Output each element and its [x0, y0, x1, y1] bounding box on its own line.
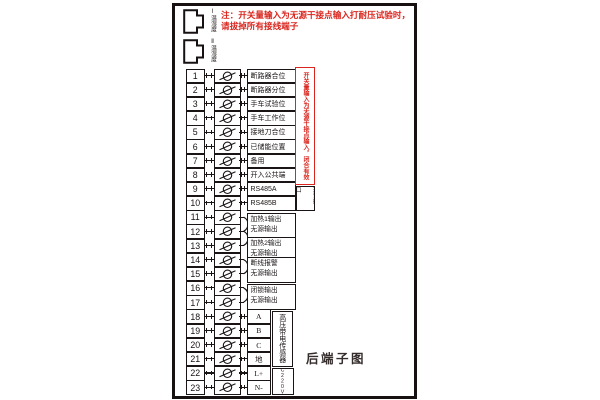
rj45-connector-icon	[183, 9, 209, 34]
screw-terminal-icon	[215, 140, 240, 153]
wire-tick	[211, 328, 212, 333]
terminal-label: L+	[247, 366, 271, 381]
screw-terminal-cell	[214, 154, 241, 169]
wire-tick	[206, 257, 207, 262]
screw-terminal-icon	[215, 381, 240, 394]
screw-terminal-icon	[215, 339, 240, 352]
screw-terminal-icon	[215, 367, 240, 380]
wire-tick	[206, 229, 207, 234]
screw-terminal-cell	[214, 69, 241, 84]
wire-tick	[206, 87, 207, 92]
wire-tick	[211, 385, 212, 390]
wire-tick	[206, 243, 207, 248]
wire-tick	[206, 357, 207, 362]
screw-terminal-icon	[215, 112, 240, 125]
terminal-number-cell: 23	[186, 380, 205, 395]
wire-tick	[206, 201, 207, 206]
output-group-line2: 无源输出	[251, 225, 296, 235]
screw-terminal-icon	[215, 325, 240, 338]
wire-tick	[244, 357, 245, 362]
wire-tick	[241, 116, 242, 121]
wire-tick	[206, 328, 207, 333]
wire-tick	[241, 342, 242, 347]
terminal-number-cell: 15	[186, 267, 205, 282]
screw-terminal-icon	[215, 353, 240, 366]
screw-terminal-cell	[214, 338, 241, 353]
wire-tick	[241, 87, 242, 92]
wire-tick	[206, 314, 207, 319]
wire-tick	[241, 172, 242, 177]
output-group-box: 闭锁输出无源输出	[247, 284, 296, 310]
wire-tick	[211, 300, 212, 305]
wire-tick	[206, 371, 207, 376]
terminal-number-cell: 10	[186, 196, 205, 211]
screw-terminal-cell	[214, 239, 241, 254]
sensor-jack-2-label: Ⅱ温湿度	[208, 39, 218, 67]
screw-terminal-icon	[215, 211, 240, 224]
wire-tick	[211, 357, 212, 362]
output-group-box: 加热1输出无源输出	[247, 213, 296, 239]
screw-terminal-cell	[214, 352, 241, 367]
wire-tick	[211, 243, 212, 248]
screw-terminal-icon	[215, 183, 240, 196]
screw-terminal-cell	[214, 281, 241, 296]
screw-terminal-icon	[215, 282, 240, 295]
wire-tick	[211, 257, 212, 262]
terminal-number-cell: 12	[186, 224, 205, 239]
screw-terminal-cell	[214, 196, 241, 211]
screw-terminal-icon	[215, 310, 240, 323]
wire-tick	[241, 328, 242, 333]
wire-tick	[211, 201, 212, 206]
wire-tick	[211, 101, 212, 106]
screw-terminal-icon	[215, 84, 240, 97]
wire-tick	[206, 73, 207, 78]
wire-tick	[244, 144, 245, 149]
screw-terminal-cell	[214, 309, 241, 324]
output-group-line2: 无源输出	[251, 269, 296, 279]
screw-terminal-cell	[214, 111, 241, 126]
wire-tick	[241, 201, 242, 206]
wire-tick	[211, 73, 212, 78]
terminal-number-cell: 1	[186, 69, 205, 84]
wire-tick	[241, 101, 242, 106]
rear-terminal-diagram-page: Ⅰ温湿度 Ⅱ温湿度 注：开关量输入为无源干接点输入打耐压试验时， 请拔掉所有接线…	[0, 0, 600, 400]
sensor-jack-1-label: Ⅰ温湿度	[208, 9, 218, 37]
wire-tick	[241, 371, 242, 376]
device-power-label: AC220V 装置电源	[272, 368, 294, 395]
comm-port-label: 通讯接口	[296, 186, 316, 211]
wire-tick	[241, 130, 242, 135]
terminal-number-cell: 13	[186, 239, 205, 254]
wire-tick	[206, 300, 207, 305]
wire-tick	[244, 186, 245, 191]
wire-tick	[206, 116, 207, 121]
terminal-number-cell: 9	[186, 182, 205, 197]
terminal-number-cell: 21	[186, 352, 205, 367]
output-group-line2: 无源输出	[251, 296, 296, 306]
screw-terminal-cell	[214, 267, 241, 282]
wire-tick	[211, 215, 212, 220]
warning-note-line2: 请拔掉所有接线端子	[221, 21, 413, 32]
wire-tick	[211, 116, 212, 121]
terminal-number-cell: 19	[186, 324, 205, 339]
warning-note: 注：开关量输入为无源干接点输入打耐压试验时， 请拔掉所有接线端子	[221, 10, 413, 33]
wire-tick	[241, 144, 242, 149]
wire-tick	[244, 385, 245, 390]
wire-tick	[244, 116, 245, 121]
output-group-line1: 加热1输出	[251, 215, 296, 225]
wire-tick	[211, 342, 212, 347]
terminal-number-cell: 5	[186, 125, 205, 140]
terminal-number-cell: 7	[186, 154, 205, 169]
terminal-label: 已储能位置	[247, 139, 296, 154]
wire-tick	[211, 229, 212, 234]
terminal-number-cell: 17	[186, 295, 205, 310]
terminal-label: 备用	[247, 154, 296, 169]
terminal-label: 接地刀合位	[247, 125, 296, 140]
wire-tick	[241, 314, 242, 319]
terminal-label: C	[247, 338, 271, 353]
wire-tick	[211, 158, 212, 163]
screw-terminal-icon	[215, 225, 240, 238]
diagram-caption: 后端子图	[306, 348, 366, 367]
screw-terminal-icon	[215, 98, 240, 111]
screw-terminal-cell	[214, 295, 241, 310]
screw-terminal-icon	[215, 155, 240, 168]
wire-tick	[244, 342, 245, 347]
warning-note-line1: 注：开关量输入为无源干接点输入打耐压试验时，	[221, 10, 413, 21]
wire-tick	[241, 186, 242, 191]
wire-tick	[244, 328, 245, 333]
screw-terminal-icon	[215, 197, 240, 210]
wire-tick	[241, 158, 242, 163]
terminal-label: N-	[247, 380, 271, 395]
output-group-box: 断线报警无源输出	[247, 257, 296, 283]
terminal-label: 断路器分位	[247, 83, 296, 98]
wire-tick	[244, 158, 245, 163]
screw-terminal-cell	[214, 83, 241, 98]
terminal-number-cell: 3	[186, 97, 205, 112]
terminal-number-cell: 16	[186, 281, 205, 296]
screw-terminal-cell	[214, 380, 241, 395]
wire-tick	[211, 371, 212, 376]
wire-tick	[211, 144, 212, 149]
wire-tick	[206, 101, 207, 106]
wire-tick	[241, 357, 242, 362]
sensor-jack-2	[183, 39, 209, 64]
wire-tick	[211, 286, 212, 291]
wire-tick	[211, 172, 212, 177]
terminal-number-cell: 2	[186, 83, 205, 98]
terminal-number-cell: 14	[186, 253, 205, 268]
wire-tick	[244, 101, 245, 106]
terminal-number-cell: 20	[186, 338, 205, 353]
wire-tick	[206, 158, 207, 163]
wire-tick	[211, 271, 212, 276]
output-group-line1: 加热2输出	[251, 239, 296, 249]
terminal-label: A	[247, 309, 271, 324]
screw-terminal-icon	[215, 169, 240, 182]
sensor-jack-1	[183, 9, 209, 34]
wire-tick	[244, 87, 245, 92]
wire-tick	[206, 186, 207, 191]
screw-terminal-icon	[215, 268, 240, 281]
screw-terminal-cell	[214, 97, 241, 112]
output-group-line1: 断线报警	[251, 259, 296, 269]
terminal-number-cell: 18	[186, 309, 205, 324]
screw-terminal-cell	[214, 210, 241, 225]
wire-tick	[206, 130, 207, 135]
terminal-label: RS485A	[247, 182, 296, 197]
rj45-connector-icon	[183, 39, 209, 64]
screw-terminal-cell	[214, 253, 241, 268]
screw-terminal-icon	[215, 126, 240, 139]
wire-tick	[206, 215, 207, 220]
terminal-number-cell: 4	[186, 111, 205, 126]
output-group-line1: 闭锁输出	[251, 286, 296, 296]
wire-tick	[244, 172, 245, 177]
screw-terminal-cell	[214, 324, 241, 339]
screw-terminal-icon	[215, 70, 240, 83]
wire-tick	[244, 314, 245, 319]
screw-terminal-cell	[214, 224, 241, 239]
wire-tick	[206, 271, 207, 276]
terminal-label: 断路器合位	[247, 69, 296, 84]
screw-terminal-icon	[215, 296, 240, 309]
wire-tick	[206, 385, 207, 390]
wire-tick	[206, 286, 207, 291]
terminal-label: 开入公共端	[247, 168, 296, 183]
screw-terminal-cell	[214, 139, 241, 154]
wire-tick	[206, 144, 207, 149]
screw-terminal-cell	[214, 125, 241, 140]
wire-tick	[211, 186, 212, 191]
switch-input-note-box: 开关量输入为无源干接点输入，闭合有效	[295, 67, 315, 185]
terminal-label: B	[247, 324, 271, 339]
wire-tick	[244, 371, 245, 376]
wire-tick	[244, 73, 245, 78]
wire-tick	[241, 385, 242, 390]
wire-tick	[244, 130, 245, 135]
wire-tick	[211, 87, 212, 92]
terminal-number-cell: 8	[186, 168, 205, 183]
wire-tick	[211, 314, 212, 319]
wire-tick	[211, 130, 212, 135]
screw-terminal-cell	[214, 366, 241, 381]
hv-sensor-label: 高压带电传感器	[272, 311, 294, 367]
terminal-number-cell: 6	[186, 139, 205, 154]
terminal-label: 手车试验位	[247, 97, 296, 112]
terminal-label: RS485B	[247, 196, 296, 211]
screw-terminal-icon	[215, 254, 240, 267]
power-rating-text: AC220V	[278, 368, 288, 395]
wire-tick	[244, 201, 245, 206]
screw-terminal-cell	[214, 182, 241, 197]
screw-terminal-cell	[214, 168, 241, 183]
terminal-number-cell: 22	[186, 366, 205, 381]
wire-tick	[241, 73, 242, 78]
terminal-label: 手车工作位	[247, 111, 296, 126]
screw-terminal-icon	[215, 240, 240, 253]
wire-tick	[206, 342, 207, 347]
terminal-number-cell: 11	[186, 210, 205, 225]
wire-tick	[206, 172, 207, 177]
terminal-label: 地	[247, 352, 271, 367]
